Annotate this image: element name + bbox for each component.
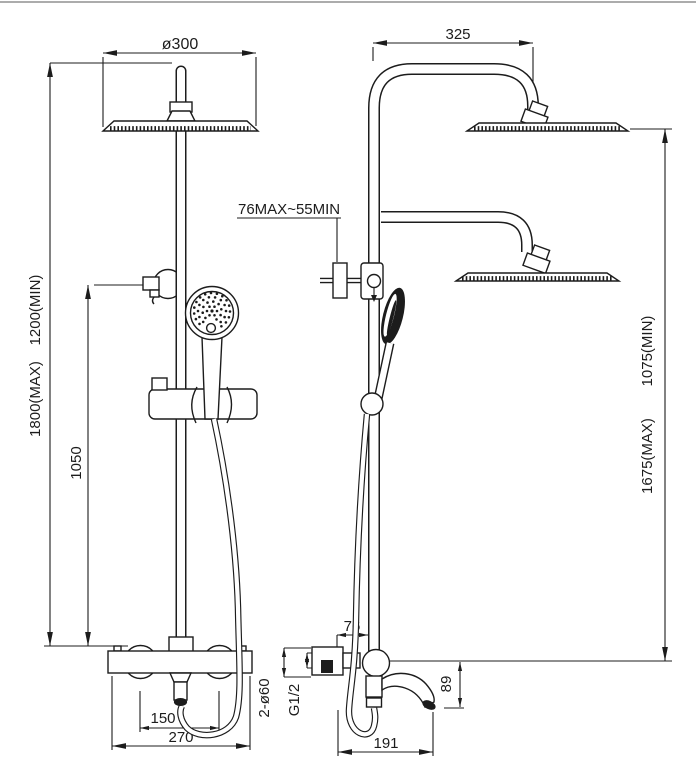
head-flange	[167, 111, 195, 121]
dimension-annotations: ø300 325 76MAX~55MIN 1200(MIN) 1800(MAX)…	[27, 26, 672, 756]
hose-nut	[367, 698, 382, 707]
overhead-shower-side-upper	[467, 100, 628, 131]
dim-label-arm-reach: 325	[445, 26, 470, 43]
tub-spout-front	[170, 673, 191, 706]
shower-system-drawing: ø300 325 76MAX~55MIN 1200(MIN) 1800(MAX)…	[0, 0, 696, 774]
front-view	[103, 71, 258, 735]
mixer-valve-front	[108, 637, 252, 679]
dim-bracket-range: 76MAX~55MIN	[237, 201, 341, 262]
dim-label-bracket-height: 1050	[68, 446, 85, 479]
wall-bracket-side	[320, 263, 383, 302]
overhead-shower-front	[103, 102, 258, 131]
dim-label-spout-drop: 89	[438, 676, 455, 693]
overhead-shower-side-lower	[456, 244, 619, 281]
gooseneck-arm-lower-side	[381, 217, 527, 252]
shower-hose-front	[180, 419, 239, 735]
dim-label-riser-min: 1075(MIN)	[639, 316, 656, 387]
dim-label-head-diameter: ø300	[162, 36, 199, 53]
dim-riser-height: 1075(MIN) 1675(MAX)	[390, 129, 672, 661]
center-jet	[207, 324, 216, 333]
riser-gooseneck-side	[374, 69, 533, 652]
mixer-valve-side	[363, 650, 438, 712]
dim-label-escutcheon: 2-ø60	[256, 678, 273, 717]
dim-label-riser-max: 1675(MAX)	[639, 418, 656, 494]
dim-label-inlet-spacing: 150	[150, 710, 175, 727]
dim-bracket-height: 1050	[68, 285, 146, 646]
dim-label-overall-max: 1800(MAX)	[27, 361, 44, 437]
dim-label-spout-reach: 191	[373, 735, 398, 752]
technical-drawing-page: ø300 325 76MAX~55MIN 1200(MIN) 1800(MAX)…	[0, 0, 696, 774]
dim-label-overall-min: 1200(MIN)	[27, 275, 44, 346]
rail-base-collar	[169, 637, 193, 652]
dim-spout-drop: 89	[438, 662, 464, 708]
holder-ball	[361, 393, 383, 415]
valve-knob-side	[363, 650, 390, 677]
dim-label-bracket-range: 76MAX~55MIN	[238, 201, 340, 218]
hand-shower-holder-front	[149, 378, 257, 419]
dim-label-thread: G1/2	[286, 684, 303, 717]
valve-body	[108, 651, 252, 673]
dim-overall-height: 1200(MIN) 1800(MAX)	[27, 63, 172, 646]
hand-shower-handle	[202, 337, 222, 419]
